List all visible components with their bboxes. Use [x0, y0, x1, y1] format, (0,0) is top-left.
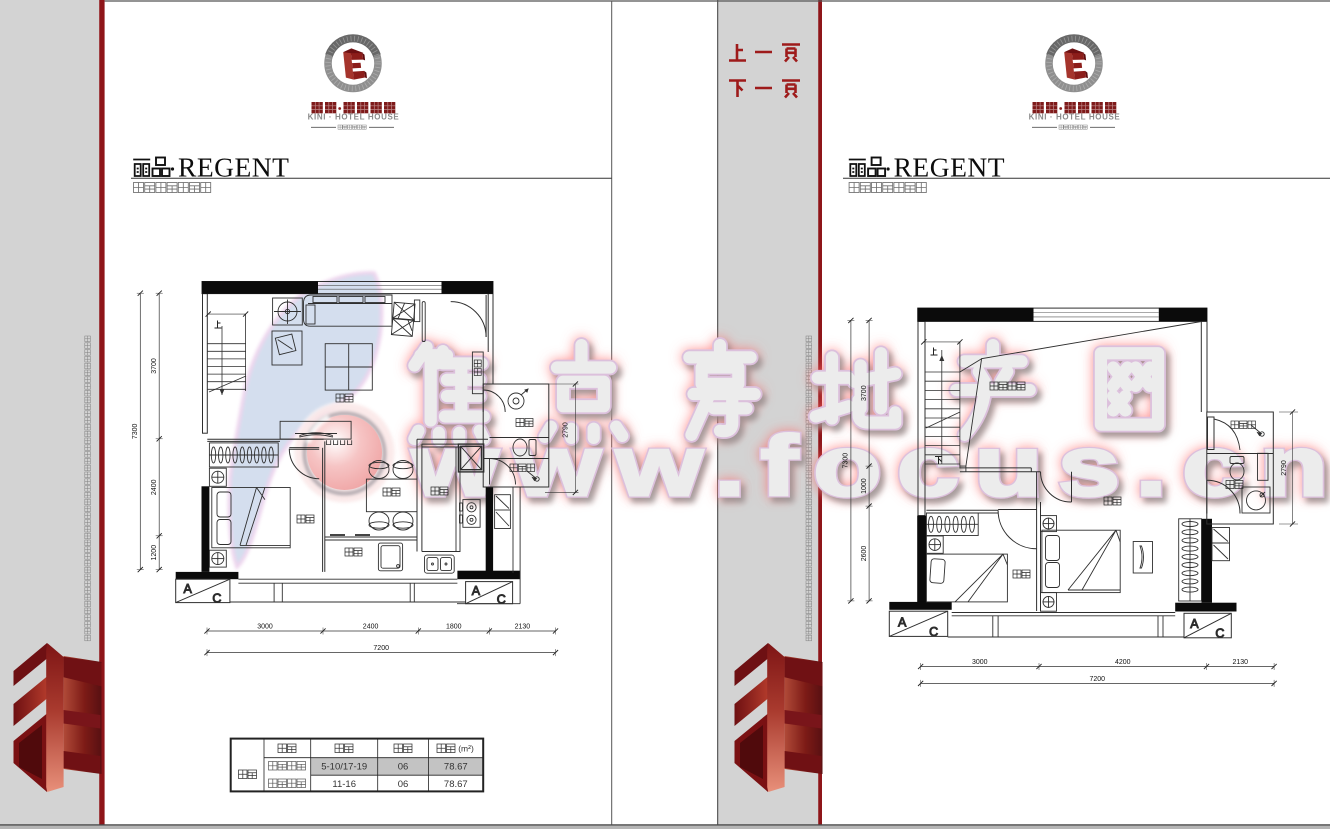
svg-text:06: 06 — [398, 762, 409, 773]
svg-text:KINI · HOTEL HOUSE: KINI · HOTEL HOUSE — [308, 113, 400, 122]
svg-text:1800: 1800 — [446, 624, 462, 631]
svg-text:1200: 1200 — [151, 545, 158, 561]
svg-text:A: A — [1190, 617, 1199, 631]
svg-text:C: C — [929, 625, 938, 639]
svg-text:A: A — [898, 615, 907, 629]
svg-text:3000: 3000 — [257, 624, 273, 631]
svg-text:A: A — [183, 582, 192, 596]
svg-text:C: C — [1215, 627, 1224, 641]
svg-text:5-10/17-19: 5-10/17-19 — [321, 762, 367, 773]
svg-text:7200: 7200 — [1090, 676, 1106, 683]
svg-text:C: C — [212, 591, 221, 605]
svg-text:3000: 3000 — [972, 659, 988, 666]
svg-text:2400: 2400 — [363, 624, 379, 631]
svg-text:2600: 2600 — [861, 546, 868, 562]
svg-text:4200: 4200 — [1115, 659, 1131, 666]
svg-text:78.67: 78.67 — [444, 779, 468, 790]
svg-text:2790: 2790 — [1281, 460, 1288, 476]
svg-text:(m²): (m²) — [458, 744, 474, 754]
svg-text:2400: 2400 — [151, 479, 158, 495]
svg-text:1000: 1000 — [861, 478, 868, 494]
svg-text:7300: 7300 — [843, 453, 850, 469]
svg-text:06: 06 — [398, 779, 409, 790]
svg-text:2130: 2130 — [515, 624, 531, 631]
svg-text:3700: 3700 — [861, 385, 868, 401]
svg-text:C: C — [497, 592, 506, 606]
svg-text:7200: 7200 — [373, 645, 389, 652]
svg-text:A: A — [472, 584, 481, 598]
svg-text:3700: 3700 — [151, 358, 158, 374]
svg-text:7300: 7300 — [132, 424, 139, 440]
svg-text:2790: 2790 — [563, 422, 570, 438]
svg-text:KINI · HOTEL HOUSE: KINI · HOTEL HOUSE — [1029, 113, 1121, 122]
svg-text:11-16: 11-16 — [332, 779, 356, 790]
svg-text:2130: 2130 — [1233, 659, 1249, 666]
svg-text:78.67: 78.67 — [444, 762, 468, 773]
